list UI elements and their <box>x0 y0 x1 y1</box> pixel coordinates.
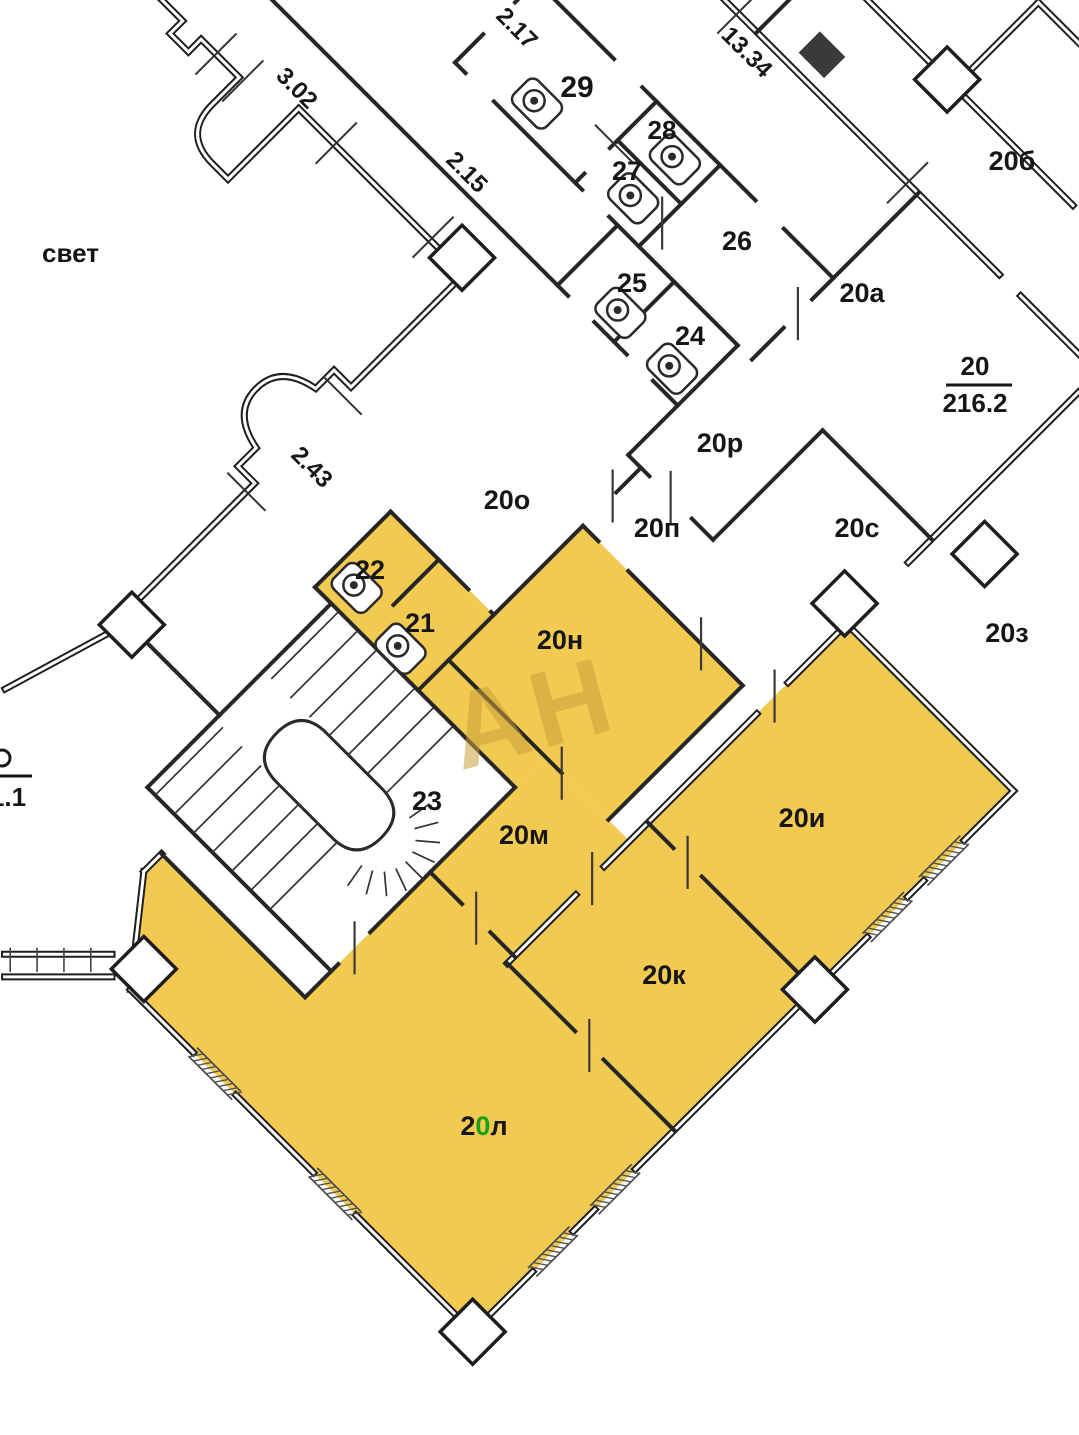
floor-plan-image: АН свет 3.02 2.15 2.17 13.34 2.43 29 28 … <box>0 0 1079 1435</box>
stair-tread-fan <box>415 814 437 836</box>
stair-tread <box>310 651 376 717</box>
dimension-3-02: 3.02 <box>271 62 323 114</box>
room-label-26: 26 <box>722 226 752 256</box>
stair-tread-fan <box>391 869 412 890</box>
outer-wall-core <box>1038 2 1079 143</box>
stair-tread <box>157 728 223 794</box>
inner-wall <box>491 612 494 615</box>
outer-wall-core <box>5 900 112 1007</box>
room-label-24: 24 <box>675 321 705 351</box>
room-label-20s: 20с <box>834 513 879 543</box>
room-label-20b: 20б <box>989 146 1036 176</box>
room-label-20l: 20л <box>460 1111 507 1141</box>
room-label-20i: 20и <box>779 803 826 833</box>
inner-wall <box>557 225 617 285</box>
room-label-22: 22 <box>355 555 385 585</box>
edge-partial-digit <box>0 750 10 766</box>
stair-tread <box>176 747 242 813</box>
inner-wall <box>752 328 784 360</box>
room-label-25: 25 <box>617 268 647 298</box>
stair-tread <box>348 689 414 755</box>
pillar <box>812 571 877 636</box>
toilet-fixtures <box>168 34 811 677</box>
stair-tread-fan <box>413 847 434 868</box>
edge-fraction: 1.1 <box>0 750 32 812</box>
room-label-20n: 20н <box>537 625 583 655</box>
stair-tread <box>214 785 280 851</box>
floor-plan-svg: АН свет 3.02 2.15 2.17 13.34 2.43 29 28 … <box>0 0 1079 1435</box>
dimension-13-34: 13.34 <box>716 22 778 84</box>
stair-tread <box>252 823 318 889</box>
outer-wall-core <box>5 923 112 1030</box>
outer-wall-northwest <box>78 0 439 319</box>
room-label-23: 23 <box>412 786 442 816</box>
edge-fraction-value: 1.1 <box>0 782 26 812</box>
inner-wall <box>555 0 614 59</box>
room-label-21: 21 <box>405 608 435 638</box>
apartment-area: 216.2 <box>942 388 1007 418</box>
stair-tread <box>195 766 261 832</box>
outer-walls <box>0 0 464 601</box>
stair-tread-fan <box>358 871 380 893</box>
room-label-20o: 20о <box>484 485 531 515</box>
pillar <box>952 521 1017 586</box>
apartment-number: 20 <box>961 351 990 381</box>
room-label-20z: 20з <box>985 618 1028 648</box>
inner-wall <box>515 0 536 2</box>
room-label-20k: 20к <box>642 960 686 990</box>
outer-wall-core <box>5 608 110 713</box>
stair-island <box>252 708 406 862</box>
stair-tread <box>233 804 299 870</box>
inner-wall <box>455 34 483 62</box>
stair-tread-fan <box>416 830 439 853</box>
stair-tread <box>386 727 452 793</box>
outer-wall-core <box>724 0 999 275</box>
inner-wall <box>692 519 713 540</box>
room-label-29: 29 <box>560 71 593 104</box>
stair-tread <box>271 842 337 908</box>
inner-wall <box>784 229 833 278</box>
room-label-27: 27 <box>612 156 642 186</box>
shaft-icon <box>799 31 846 78</box>
stair-tread <box>291 632 357 698</box>
dimension-2-17: 2.17 <box>491 2 543 54</box>
inner-wall <box>455 63 466 74</box>
inner-wall <box>616 468 641 493</box>
stair-tread <box>329 670 395 736</box>
dimension-2-15: 2.15 <box>441 146 493 198</box>
stair-tread-fan <box>374 872 397 895</box>
courtyard-label: свет <box>42 238 99 268</box>
stair-tread <box>367 708 433 774</box>
room-label-28: 28 <box>648 115 677 145</box>
stair-tread-fan <box>406 862 422 878</box>
inner-wall <box>628 455 649 476</box>
room-label-20a: 20а <box>839 278 885 308</box>
apartment-fraction: 20 216.2 <box>942 351 1012 418</box>
dimension-2-43: 2.43 <box>286 441 338 493</box>
stair-tread-fan <box>345 866 364 885</box>
pillar <box>430 225 495 290</box>
inner-wall <box>757 0 790 32</box>
room-label-20m: 20м <box>499 820 549 850</box>
room-label-20r: 20р <box>697 428 744 458</box>
stair-tread <box>272 613 338 679</box>
room-label-20p: 20п <box>634 513 680 543</box>
